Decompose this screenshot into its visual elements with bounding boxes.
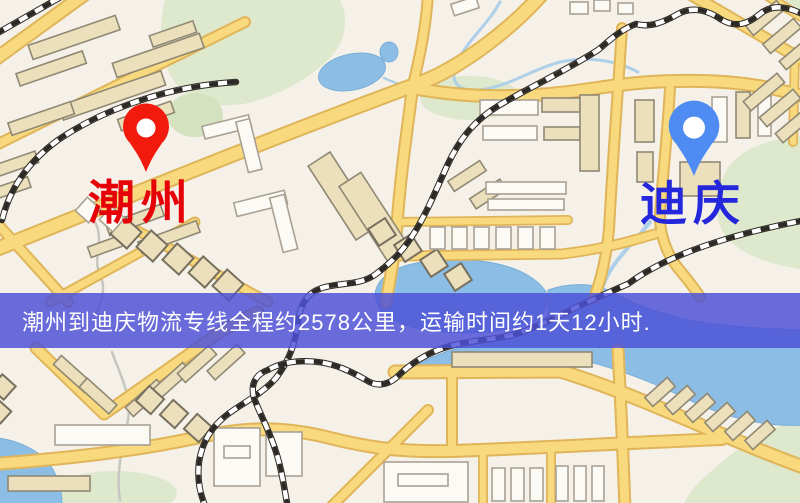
route-info-banner: 潮州到迪庆物流专线全程约2578公里，运输时间约1天12小时. (0, 293, 800, 348)
logistics-route-map: 潮州 迪庆 潮州到迪庆物流专线全程约2578公里，运输时间约1天12小时. (0, 0, 800, 503)
origin-pin-hole (137, 119, 156, 138)
route-info-text: 潮州到迪庆物流专线全程约2578公里，运输时间约1天12小时. (22, 305, 651, 337)
origin-city-label: 潮州 (88, 178, 194, 230)
destination-city-label: 迪庆 (640, 179, 746, 231)
map-canvas: 潮州 迪庆 (0, 0, 800, 503)
destination-pin-hole (683, 117, 705, 139)
